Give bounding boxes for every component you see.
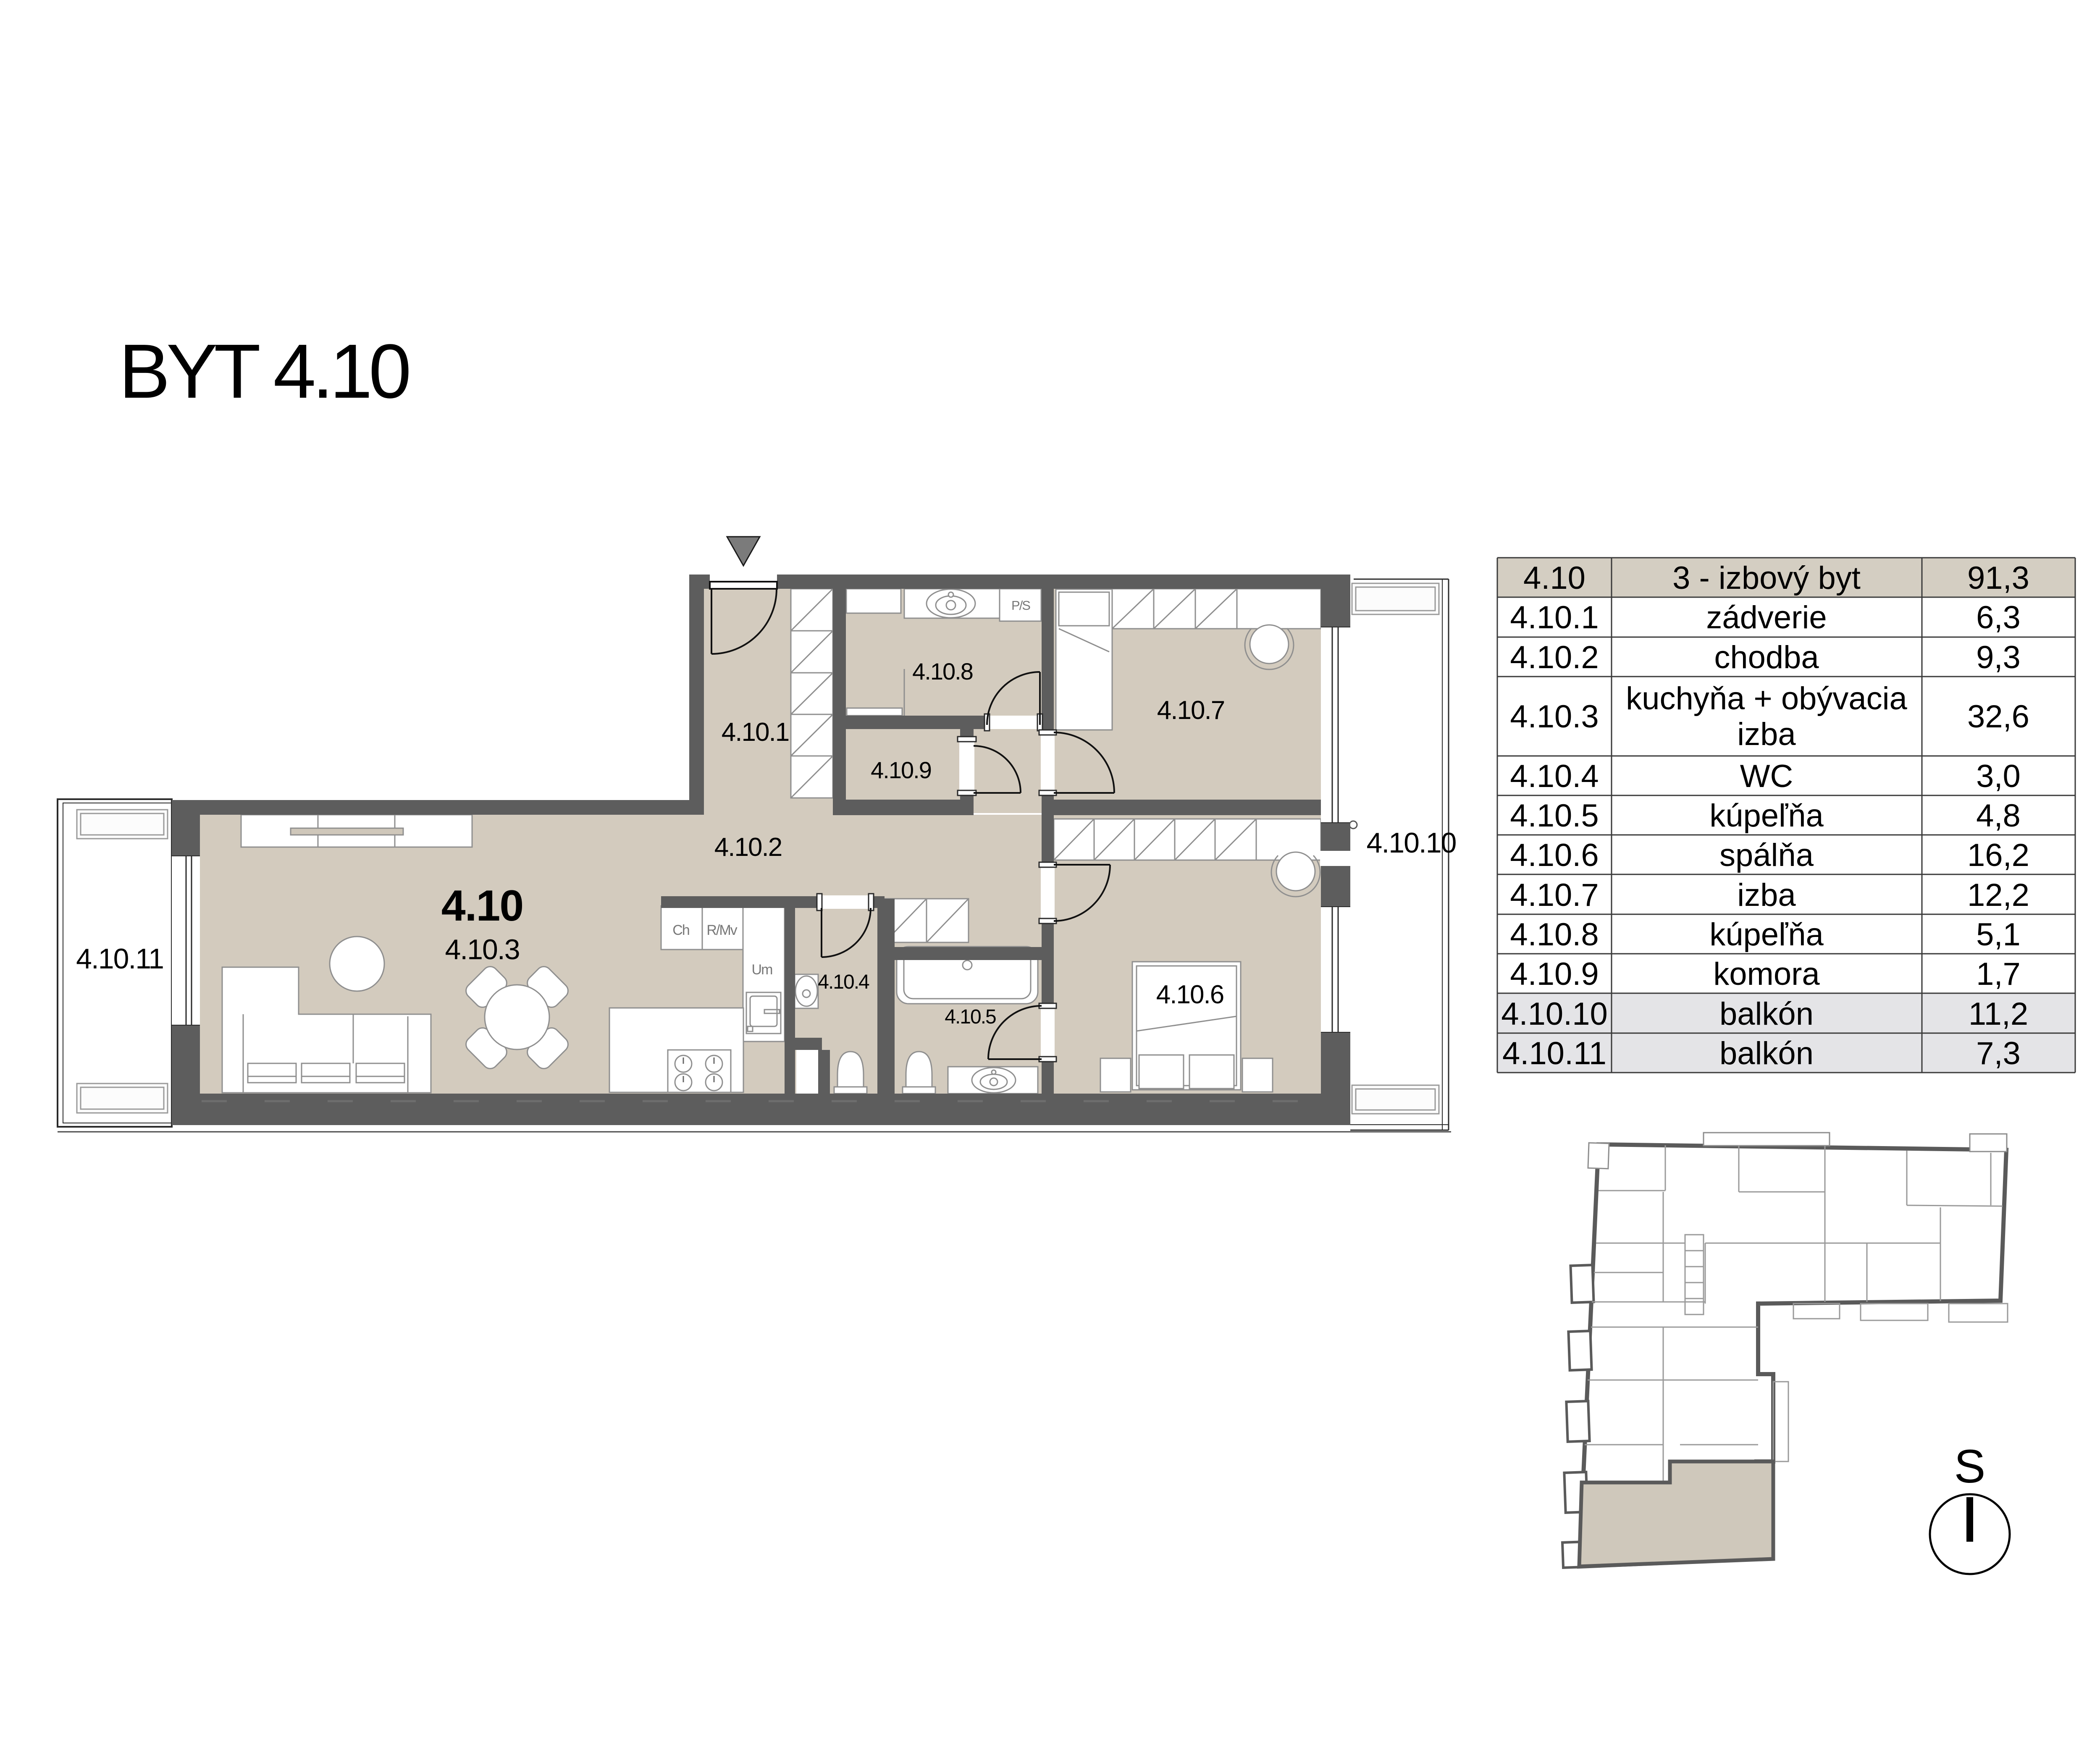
svg-text:4.10.8: 4.10.8 (912, 658, 973, 685)
svg-text:4.10.3: 4.10.3 (445, 934, 519, 966)
svg-text:4,8: 4,8 (1976, 798, 2021, 834)
svg-text:4.10.1: 4.10.1 (1510, 600, 1599, 635)
svg-text:4.10.4: 4.10.4 (1510, 758, 1599, 794)
svg-text:komora: komora (1713, 956, 1820, 992)
svg-text:4.10.5: 4.10.5 (945, 1006, 996, 1028)
svg-text:kuchyňa + obývacia: kuchyňa + obývacia (1626, 681, 1907, 716)
svg-text:32,6: 32,6 (1967, 699, 2029, 735)
svg-text:4.10.8: 4.10.8 (1510, 917, 1599, 952)
svg-text:4.10.2: 4.10.2 (1510, 640, 1599, 675)
svg-text:chodba: chodba (1714, 640, 1819, 675)
svg-text:4.10.6: 4.10.6 (1156, 980, 1223, 1009)
svg-text:11,2: 11,2 (1969, 996, 2028, 1032)
svg-text:16,2: 16,2 (1967, 837, 2029, 873)
svg-text:4.10.11: 4.10.11 (76, 943, 163, 975)
svg-text:4.10.3: 4.10.3 (1510, 699, 1599, 735)
svg-text:3 - izbový byt: 3 - izbový byt (1672, 560, 1861, 596)
svg-text:4.10.11: 4.10.11 (1502, 1036, 1606, 1071)
svg-text:zádverie: zádverie (1706, 600, 1827, 635)
svg-text:4.10.6: 4.10.6 (1510, 837, 1599, 873)
svg-text:balkón: balkón (1719, 1036, 1814, 1071)
svg-text:Um: Um (752, 962, 773, 978)
svg-text:4.10.7: 4.10.7 (1510, 877, 1599, 913)
svg-text:kúpeľňa: kúpeľňa (1709, 917, 1824, 952)
svg-text:WC: WC (1740, 758, 1793, 794)
svg-text:12,2: 12,2 (1967, 877, 2029, 913)
svg-text:4.10.4: 4.10.4 (818, 971, 869, 993)
svg-text:4.10: 4.10 (1523, 560, 1585, 596)
svg-text:5,1: 5,1 (1976, 917, 2021, 952)
svg-text:4.10.7: 4.10.7 (1157, 696, 1224, 725)
svg-text:izba: izba (1737, 716, 1796, 752)
svg-text:S: S (1954, 1440, 1986, 1493)
svg-text:Ch: Ch (672, 922, 689, 938)
svg-text:spálňa: spálňa (1719, 837, 1814, 873)
svg-text:balkón: balkón (1719, 996, 1814, 1032)
svg-text:izba: izba (1737, 877, 1796, 913)
svg-text:BYT 4.10: BYT 4.10 (119, 328, 409, 414)
svg-text:4.10.5: 4.10.5 (1510, 798, 1599, 834)
svg-text:3,0: 3,0 (1976, 758, 2021, 794)
svg-text:7,3: 7,3 (1976, 1036, 2021, 1071)
svg-text:9,3: 9,3 (1976, 640, 2021, 675)
svg-text:4.10.9: 4.10.9 (871, 757, 931, 783)
svg-text:4.10.2: 4.10.2 (714, 833, 782, 862)
svg-text:R/Mv: R/Mv (706, 922, 737, 938)
svg-text:91,3: 91,3 (1967, 560, 2029, 596)
svg-text:4.10.10: 4.10.10 (1367, 827, 1456, 859)
svg-text:4.10.10: 4.10.10 (1501, 996, 1608, 1032)
svg-text:4.10: 4.10 (441, 882, 523, 930)
svg-text:kúpeľňa: kúpeľňa (1709, 798, 1824, 834)
svg-text:6,3: 6,3 (1976, 600, 2021, 635)
svg-text:4.10.1: 4.10.1 (722, 718, 789, 747)
svg-text:1,7: 1,7 (1976, 956, 2021, 992)
svg-text:4.10.9: 4.10.9 (1510, 956, 1599, 992)
svg-text:P/S: P/S (1011, 598, 1030, 613)
